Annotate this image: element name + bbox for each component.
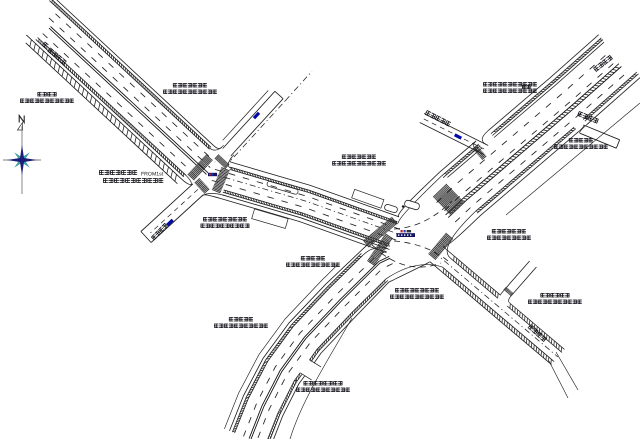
svg-text:FROM1st: FROM1st bbox=[141, 172, 164, 178]
